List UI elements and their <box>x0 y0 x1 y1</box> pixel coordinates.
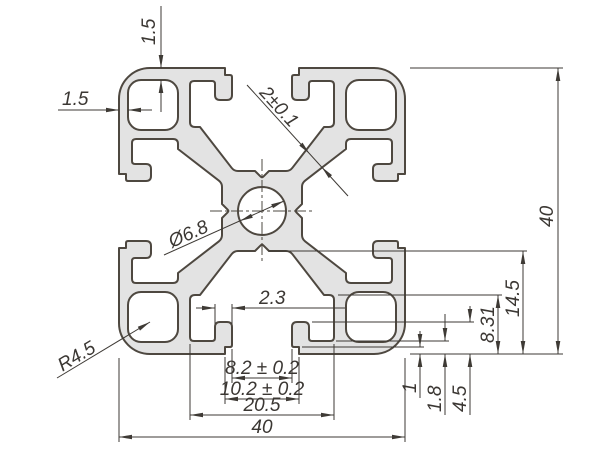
dim-slot-depth: 14.5 <box>503 280 524 317</box>
dim-slot-inner-width: 20.5 <box>243 395 281 416</box>
dim-lip-width: 2.3 <box>258 288 286 309</box>
dim-lip-height: 4.5 <box>450 385 471 412</box>
corner-cavity <box>346 292 396 342</box>
dim-overall-height: 40 <box>537 205 558 227</box>
corner-cavity <box>128 292 178 342</box>
aluminum-profile-drawing: 1.5 1.5 2±0.1 Ø6.8 R4.5 2.3 8.2 ± 0.2 10… <box>0 0 600 450</box>
dim-corner-radius: R4.5 <box>54 337 100 376</box>
dim-wall-top: 1.5 <box>139 18 160 45</box>
corner-cavity <box>128 80 178 130</box>
dim-slot-wing-depth: 8.31 <box>478 306 499 343</box>
dim-slot-opening: 8.2 ± 0.2 <box>225 358 299 379</box>
dim-wall-left: 1.5 <box>62 89 89 110</box>
corner-cavity <box>346 80 396 130</box>
dim-face-notch: 1 <box>400 382 421 393</box>
dim-center-bore: Ø6.8 <box>165 216 212 253</box>
drawing-canvas: 1.5 1.5 2±0.1 Ø6.8 R4.5 2.3 8.2 ± 0.2 10… <box>0 0 600 450</box>
dim-lip-root: 1.8 <box>425 385 446 412</box>
dim-overall-width: 40 <box>251 417 273 438</box>
